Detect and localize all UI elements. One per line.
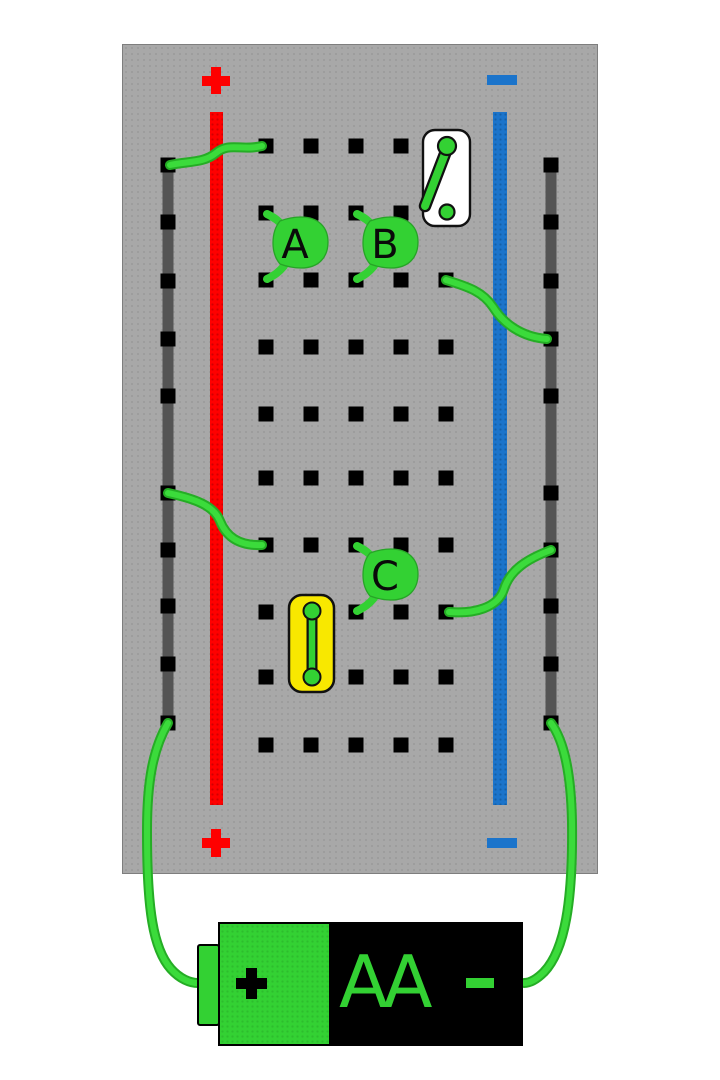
breadboard-hole[interactable]: [394, 273, 409, 288]
battery-body: AA: [218, 922, 523, 1046]
chip-label: C: [371, 554, 399, 600]
breadboard-hole[interactable]: [349, 139, 364, 154]
breadboard-hole[interactable]: [304, 273, 319, 288]
circuit-scene: ABC AA: [0, 0, 720, 1080]
rail-hole[interactable]: [161, 599, 176, 614]
breadboard-hole[interactable]: [304, 340, 319, 355]
breadboard-hole[interactable]: [349, 738, 364, 753]
breadboard-hole[interactable]: [304, 139, 319, 154]
lamp-component[interactable]: [289, 595, 334, 692]
wire-row8-to-negative-rail[interactable]: [449, 550, 551, 612]
rail-hole[interactable]: [161, 543, 176, 558]
chip-label: B: [371, 222, 398, 268]
rail-hole[interactable]: [544, 274, 559, 289]
breadboard-hole[interactable]: [259, 471, 274, 486]
breadboard-hole[interactable]: [259, 340, 274, 355]
battery-plus-icon: [236, 968, 267, 999]
wire-row1-to-positive-rail[interactable]: [170, 146, 262, 165]
battery-terminal-nub: [197, 944, 220, 1026]
battery-minus-icon: [466, 978, 494, 988]
breadboard-hole[interactable]: [439, 471, 454, 486]
breadboard-hole[interactable]: [259, 738, 274, 753]
battery-negative-wire[interactable]: [524, 723, 572, 983]
breadboard-hole[interactable]: [259, 407, 274, 422]
wire-row3-to-negative-rail[interactable]: [446, 280, 547, 339]
breadboard-hole[interactable]: [304, 538, 319, 553]
breadboard-hole[interactable]: [439, 407, 454, 422]
component-chip-b[interactable]: B: [357, 214, 418, 279]
rail-hole[interactable]: [544, 486, 559, 501]
battery-positive-end: [220, 924, 329, 1044]
scene-canvas: ABC: [0, 0, 720, 1080]
component-chip-a[interactable]: A: [267, 214, 328, 279]
breadboard-hole[interactable]: [349, 340, 364, 355]
rail-hole[interactable]: [544, 599, 559, 614]
breadboard-hole[interactable]: [259, 670, 274, 685]
chip-label: A: [281, 222, 309, 268]
breadboard-hole[interactable]: [394, 670, 409, 685]
breadboard-hole[interactable]: [394, 139, 409, 154]
breadboard-hole[interactable]: [304, 407, 319, 422]
breadboard-hole[interactable]: [394, 407, 409, 422]
switch-contact: [438, 137, 456, 155]
switch-contact: [440, 205, 455, 220]
rail-hole[interactable]: [544, 389, 559, 404]
lamp-contact: [304, 603, 321, 620]
breadboard-hole[interactable]: [439, 738, 454, 753]
rail-hole[interactable]: [161, 389, 176, 404]
switch-component[interactable]: [423, 130, 470, 226]
breadboard-hole[interactable]: [439, 670, 454, 685]
breadboard-hole[interactable]: [394, 471, 409, 486]
battery-positive-wire[interactable]: [147, 723, 198, 983]
breadboard-hole[interactable]: [349, 407, 364, 422]
wire-positive-rail-to-row7[interactable]: [168, 493, 262, 545]
battery-negative-end: AA: [329, 924, 521, 1044]
rail-hole[interactable]: [161, 215, 176, 230]
component-chip-c[interactable]: C: [357, 546, 418, 611]
rail-hole[interactable]: [161, 274, 176, 289]
rail-hole[interactable]: [544, 657, 559, 672]
breadboard-hole[interactable]: [304, 738, 319, 753]
breadboard-hole[interactable]: [439, 340, 454, 355]
lamp-contact: [304, 669, 321, 686]
breadboard-hole[interactable]: [259, 605, 274, 620]
breadboard-hole[interactable]: [394, 738, 409, 753]
breadboard-hole[interactable]: [394, 605, 409, 620]
rail-hole[interactable]: [161, 332, 176, 347]
rail-hole[interactable]: [161, 657, 176, 672]
breadboard-hole[interactable]: [349, 471, 364, 486]
breadboard-hole[interactable]: [349, 670, 364, 685]
breadboard-hole[interactable]: [304, 471, 319, 486]
breadboard-hole[interactable]: [439, 538, 454, 553]
rail-hole[interactable]: [544, 158, 559, 173]
battery[interactable]: AA: [195, 920, 527, 1050]
battery-size-label: AA: [339, 946, 426, 1022]
breadboard-hole[interactable]: [394, 340, 409, 355]
rail-hole[interactable]: [544, 215, 559, 230]
